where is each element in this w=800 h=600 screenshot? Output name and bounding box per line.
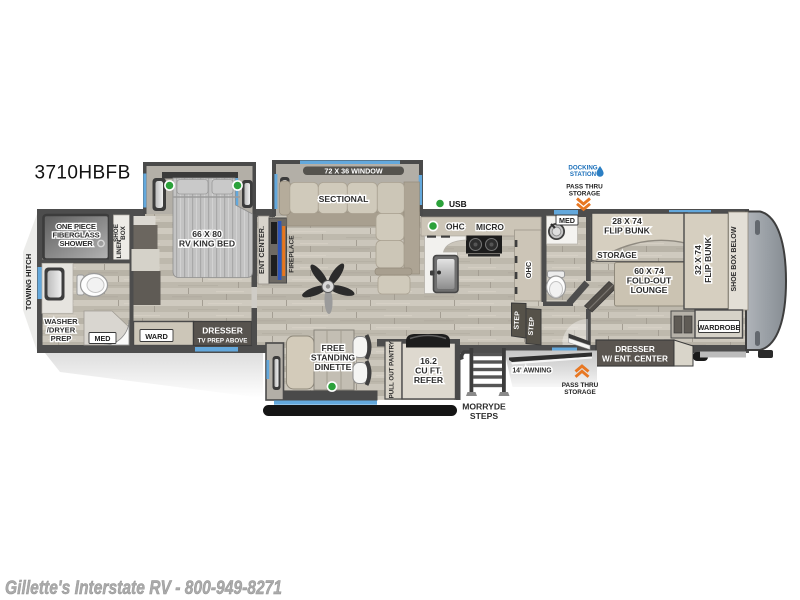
svg-text:CU FT.: CU FT. (415, 366, 442, 376)
svg-text:OHC: OHC (524, 261, 533, 278)
svg-text:FREE: FREE (322, 343, 345, 353)
svg-text:LINEN: LINEN (116, 239, 123, 258)
svg-text:DRESSER: DRESSER (615, 345, 655, 354)
svg-text:ENT CENTER.: ENT CENTER. (257, 226, 266, 274)
svg-text:TOWING HITCH: TOWING HITCH (24, 254, 33, 310)
svg-text:72 X 36 WINDOW: 72 X 36 WINDOW (324, 167, 383, 176)
svg-text:14' AWNING: 14' AWNING (512, 368, 551, 375)
svg-text:PASS THRU: PASS THRU (562, 382, 599, 389)
svg-text:60 X 74: 60 X 74 (634, 266, 664, 276)
svg-text:PULL OUT PANTRY: PULL OUT PANTRY (389, 340, 396, 398)
svg-text:32 X 74: 32 X 74 (693, 245, 703, 275)
svg-text:DRESSER: DRESSER (202, 326, 243, 336)
svg-text:SHOE: SHOE (113, 224, 120, 242)
svg-text:PREP: PREP (51, 334, 72, 343)
svg-text:28 X 74: 28 X 74 (612, 216, 642, 226)
svg-text:MICRO: MICRO (476, 222, 504, 232)
svg-text:RV KING BED: RV KING BED (179, 239, 235, 249)
svg-text:USB: USB (449, 199, 467, 209)
svg-text:W/ ENT. CENTER: W/ ENT. CENTER (602, 355, 668, 364)
svg-text:WARD: WARD (145, 332, 168, 341)
svg-text:MED: MED (559, 216, 575, 225)
svg-text:STATION: STATION (570, 171, 597, 178)
svg-text:DINETTE: DINETTE (315, 362, 352, 372)
svg-text:STANDING: STANDING (311, 353, 356, 363)
svg-text:FIREPLACE: FIREPLACE (289, 235, 296, 273)
svg-text:SHOE BOX BELOW: SHOE BOX BELOW (731, 226, 738, 291)
svg-text:SHOWER: SHOWER (60, 239, 94, 248)
svg-text:STORAGE: STORAGE (597, 251, 637, 260)
svg-text:FOLD-OUT: FOLD-OUT (627, 276, 672, 286)
svg-text:MORRYDE: MORRYDE (462, 402, 506, 412)
svg-text:WARDROBE: WARDROBE (698, 323, 741, 332)
svg-text:16.2: 16.2 (420, 356, 437, 366)
svg-text:STEP: STEP (514, 311, 522, 330)
svg-text:3710HBFB: 3710HBFB (35, 163, 131, 184)
svg-text:STORAGE: STORAGE (569, 191, 601, 198)
svg-text:FLIP BUNK: FLIP BUNK (703, 236, 713, 282)
svg-text:66 X 80: 66 X 80 (192, 229, 222, 239)
svg-text:TV PREP ABOVE: TV PREP ABOVE (198, 338, 248, 345)
svg-text:SECTIONAL: SECTIONAL (319, 194, 369, 204)
svg-text:STEPS: STEPS (470, 411, 498, 421)
svg-text:REFER: REFER (414, 375, 444, 385)
svg-text:OHC: OHC (446, 222, 465, 232)
svg-text:STORAGE: STORAGE (564, 389, 596, 396)
svg-text:BOX: BOX (120, 225, 127, 239)
svg-text:PASS THRU: PASS THRU (566, 184, 603, 191)
svg-text:Gillette's Interstate RV - 800: Gillette's Interstate RV - 800-949-8271 (5, 578, 282, 599)
svg-text:FLIP BUNK: FLIP BUNK (604, 226, 650, 236)
svg-text:LOUNGE: LOUNGE (631, 285, 668, 295)
svg-text:MED: MED (95, 334, 111, 343)
